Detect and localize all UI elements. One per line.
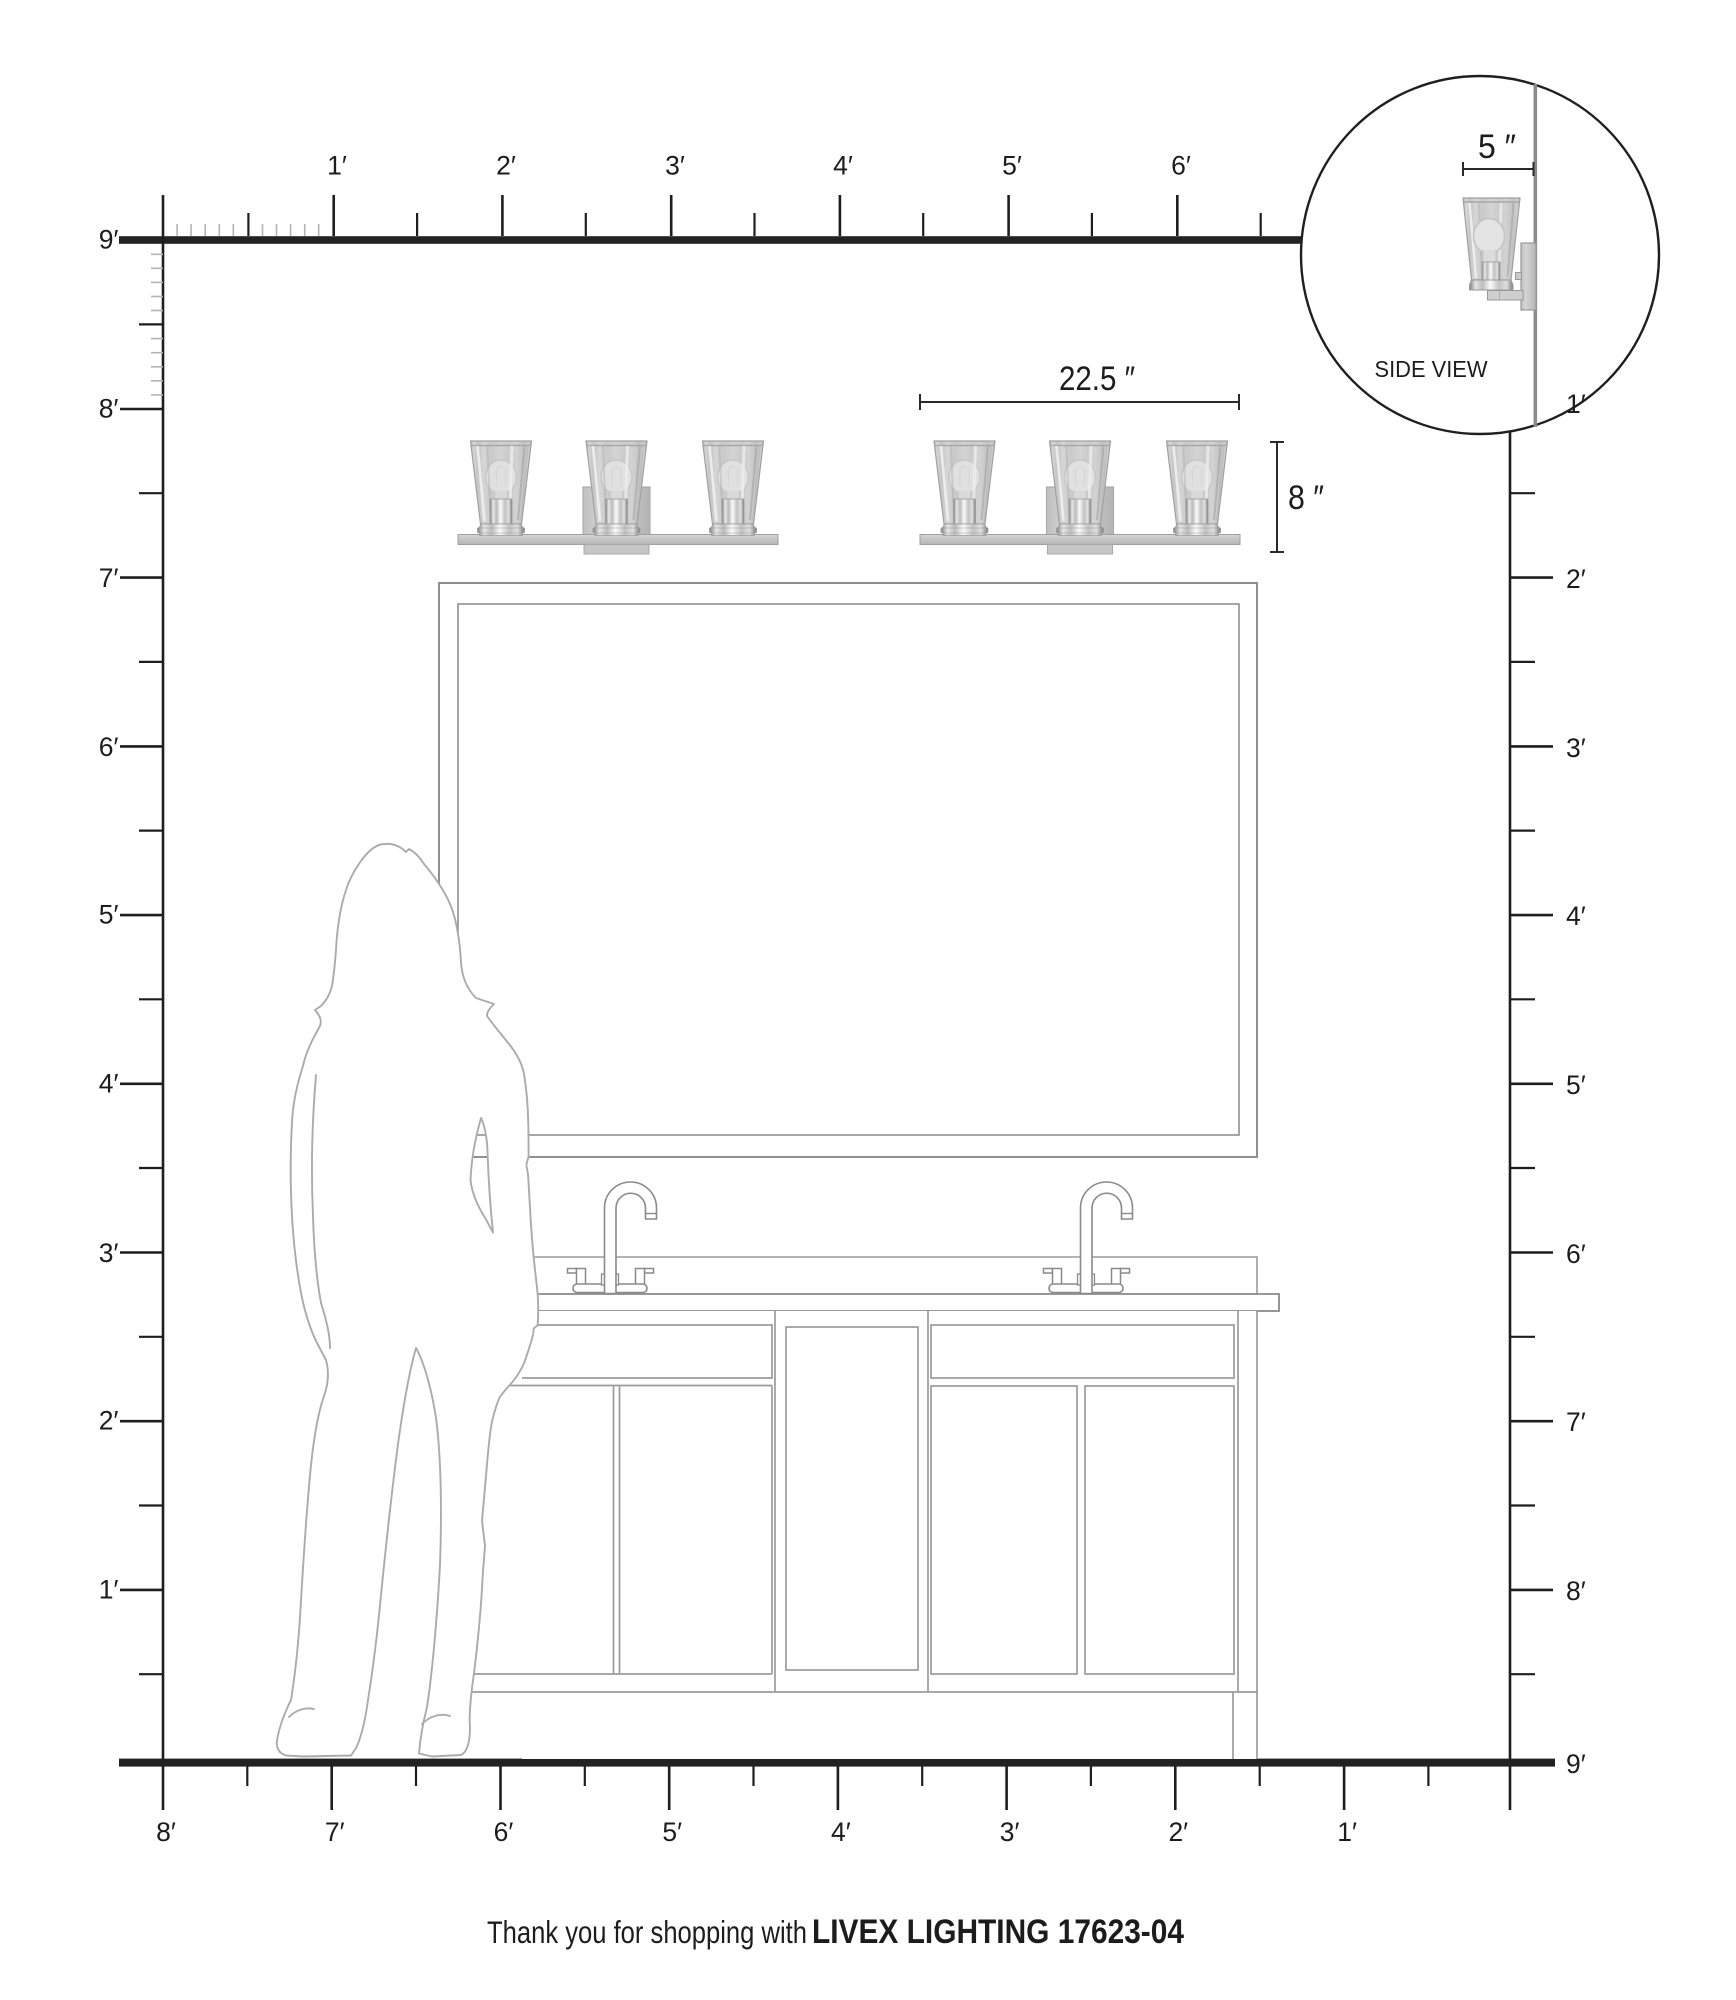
svg-text:6′: 6′ xyxy=(99,732,119,762)
svg-text:1′: 1′ xyxy=(1566,389,1586,419)
svg-text:7′: 7′ xyxy=(1566,1407,1586,1437)
svg-text:5′: 5′ xyxy=(99,900,119,930)
svg-text:4′: 4′ xyxy=(99,1069,119,1099)
svg-text:LIVEX LIGHTING 17623-04: LIVEX LIGHTING 17623-04 xyxy=(812,1913,1184,1951)
svg-text:9′: 9′ xyxy=(99,225,119,255)
svg-text:4′: 4′ xyxy=(833,151,853,181)
svg-text:8′: 8′ xyxy=(156,1817,176,1847)
svg-text:2′: 2′ xyxy=(496,151,516,181)
svg-text:SIDE VIEW: SIDE VIEW xyxy=(1375,356,1489,382)
svg-text:22.5 ″: 22.5 ″ xyxy=(1059,360,1135,398)
svg-text:5′: 5′ xyxy=(1002,151,1022,181)
svg-text:Thank you for shopping with: Thank you for shopping with xyxy=(487,1914,807,1950)
svg-text:1′: 1′ xyxy=(99,1575,119,1605)
svg-text:5′: 5′ xyxy=(662,1817,682,1847)
svg-text:6′: 6′ xyxy=(1171,151,1191,181)
svg-text:1′: 1′ xyxy=(327,151,347,181)
svg-text:2′: 2′ xyxy=(1566,564,1586,594)
svg-text:2′: 2′ xyxy=(99,1406,119,1436)
svg-text:5 ″: 5 ″ xyxy=(1478,128,1516,166)
svg-text:3′: 3′ xyxy=(1566,733,1586,763)
svg-text:9′: 9′ xyxy=(1566,1749,1586,1779)
svg-text:4′: 4′ xyxy=(831,1817,851,1847)
svg-text:2′: 2′ xyxy=(1168,1817,1188,1847)
svg-text:3′: 3′ xyxy=(99,1238,119,1268)
svg-text:7′: 7′ xyxy=(99,563,119,593)
svg-text:4′: 4′ xyxy=(1566,901,1586,931)
svg-text:1′: 1′ xyxy=(1337,1817,1357,1847)
svg-text:8′: 8′ xyxy=(1566,1576,1586,1606)
svg-text:8′: 8′ xyxy=(99,394,119,424)
svg-text:3′: 3′ xyxy=(665,151,685,181)
svg-text:6′: 6′ xyxy=(494,1817,514,1847)
svg-text:7′: 7′ xyxy=(325,1817,345,1847)
svg-text:5′: 5′ xyxy=(1566,1070,1586,1100)
svg-text:8 ″: 8 ″ xyxy=(1288,479,1324,517)
svg-text:3′: 3′ xyxy=(1000,1817,1020,1847)
svg-text:6′: 6′ xyxy=(1566,1239,1586,1269)
